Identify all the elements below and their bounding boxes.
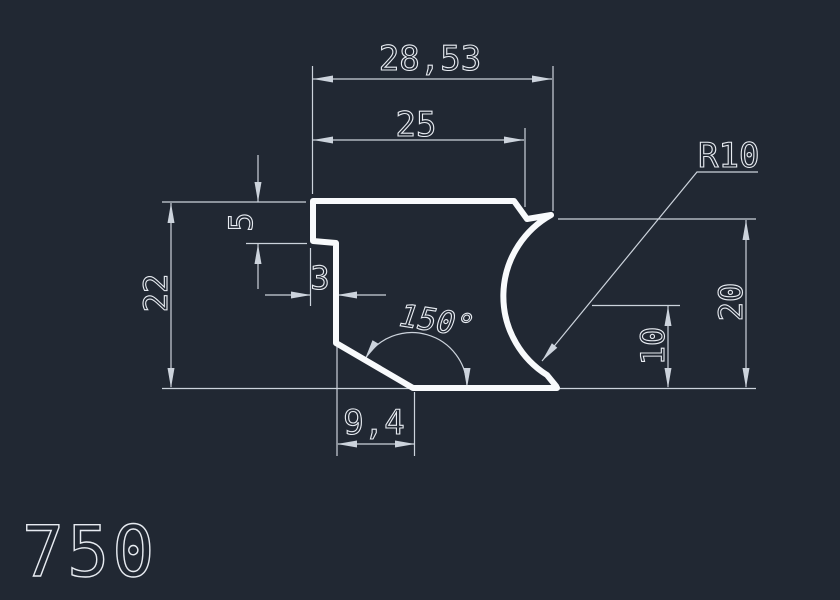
- dim-text-corner-radius: R10: [698, 136, 759, 176]
- dim-text-radius-center-height: 10: [634, 327, 672, 366]
- dim-text-top-width: 25: [396, 105, 437, 145]
- dim-text-step-height: 5: [222, 212, 260, 231]
- drawing-number-text: 750: [22, 511, 157, 593]
- cad-drawing-canvas: 28,53 25 R10 22 5 3 150° 20 10 9,4 750: [0, 0, 840, 600]
- dim-text-bottom-width: 9,4: [343, 403, 404, 443]
- dim-text-right-height: 20: [712, 283, 750, 322]
- dim-text-step-width: 3: [310, 259, 329, 297]
- profile-drawing: 28,53 25 R10 22 5 3 150° 20 10 9,4 750: [0, 0, 840, 600]
- dim-text-overall-height: 22: [137, 274, 175, 313]
- dim-text-overall-width: 28,53: [379, 39, 481, 79]
